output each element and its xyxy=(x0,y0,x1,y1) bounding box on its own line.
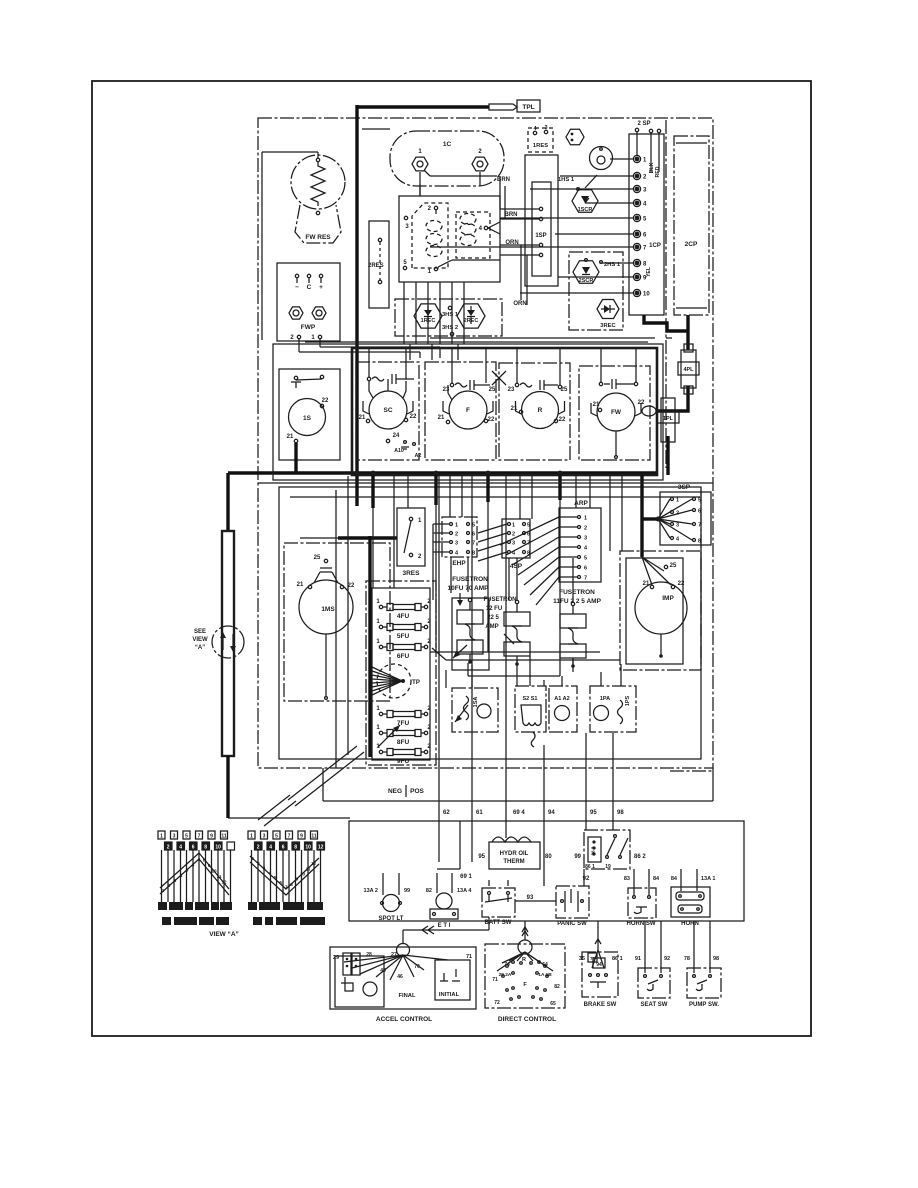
svg-text:SEE: SEE xyxy=(194,629,206,635)
svg-text:6: 6 xyxy=(282,845,285,851)
svg-text:11: 11 xyxy=(306,866,311,871)
svg-text:23: 23 xyxy=(443,387,450,393)
svg-text:8: 8 xyxy=(294,845,297,851)
svg-text:5: 5 xyxy=(584,556,587,562)
svg-text:10: 10 xyxy=(215,845,221,851)
svg-text:FUSETRON: FUSETRON xyxy=(452,576,488,583)
svg-text:12 FU: 12 FU xyxy=(486,606,502,612)
svg-text:7: 7 xyxy=(198,858,201,863)
svg-text:1SA: 1SA xyxy=(473,697,479,708)
svg-text:ORN: ORN xyxy=(513,301,526,307)
svg-text:2CP: 2CP xyxy=(685,241,698,248)
svg-text:EHP: EHP xyxy=(452,560,466,567)
svg-text:10: 10 xyxy=(300,872,306,877)
svg-text:99: 99 xyxy=(574,854,581,860)
svg-text:3: 3 xyxy=(263,866,266,871)
svg-text:95: 95 xyxy=(590,810,597,816)
svg-text:1SP: 1SP xyxy=(535,233,546,239)
svg-text:6: 6 xyxy=(192,845,195,851)
svg-text:2: 2 xyxy=(167,845,170,851)
svg-text:HORN: HORN xyxy=(681,921,699,927)
svg-text:1PL: 1PL xyxy=(663,416,674,422)
svg-text:RED: RED xyxy=(655,166,661,177)
svg-text:24: 24 xyxy=(393,433,400,439)
svg-text:29 2A: 29 2A xyxy=(499,972,512,978)
svg-text:NEG: NEG xyxy=(388,788,402,795)
svg-text:71: 71 xyxy=(492,977,498,983)
svg-text:2 SP: 2 SP xyxy=(637,121,650,127)
svg-text:45: 45 xyxy=(380,968,386,974)
svg-text:27: 27 xyxy=(391,952,397,958)
svg-text:62: 62 xyxy=(443,810,450,816)
svg-text:2: 2 xyxy=(455,532,458,538)
svg-text:2REC: 2REC xyxy=(464,318,479,324)
svg-text:11: 11 xyxy=(311,834,317,840)
svg-text:5: 5 xyxy=(185,834,188,840)
svg-text:IMP: IMP xyxy=(662,595,674,602)
svg-text:86 3: 86 3 xyxy=(591,846,596,855)
svg-text:65: 65 xyxy=(550,1001,556,1007)
svg-text:5: 5 xyxy=(274,875,277,880)
svg-text:INITIAL: INITIAL xyxy=(439,992,460,998)
svg-text:6: 6 xyxy=(192,863,195,868)
svg-text:4: 4 xyxy=(268,870,271,875)
svg-text:F: F xyxy=(466,407,470,414)
svg-text:SPOT LT: SPOT LT xyxy=(379,916,404,922)
svg-text:5: 5 xyxy=(275,834,278,840)
svg-text:5: 5 xyxy=(186,868,189,873)
svg-text:22 5: 22 5 xyxy=(487,615,499,621)
svg-text:61: 61 xyxy=(476,810,483,816)
svg-text:HORN SW: HORN SW xyxy=(627,921,656,927)
svg-text:5FU: 5FU xyxy=(397,633,410,640)
svg-text:3: 3 xyxy=(455,541,458,547)
svg-text:82: 82 xyxy=(426,888,432,894)
svg-text:12: 12 xyxy=(311,861,317,866)
svg-text:21: 21 xyxy=(359,415,366,421)
svg-text:“A”: “A” xyxy=(195,645,205,651)
svg-text:A10: A10 xyxy=(394,448,404,454)
svg-text:21: 21 xyxy=(643,581,650,587)
svg-text:98: 98 xyxy=(617,810,624,816)
svg-text:1HS 1: 1HS 1 xyxy=(558,177,575,183)
svg-text:9: 9 xyxy=(300,834,303,840)
svg-text:HYDR OIL: HYDR OIL xyxy=(500,851,529,857)
svg-text:28: 28 xyxy=(366,952,372,958)
svg-text:2RES: 2RES xyxy=(368,263,384,269)
svg-text:8FU: 8FU xyxy=(397,739,410,746)
svg-text:3HS 2: 3HS 2 xyxy=(442,325,458,331)
svg-text:FINAL: FINAL xyxy=(398,993,416,999)
svg-text:21: 21 xyxy=(511,406,518,412)
svg-text:3: 3 xyxy=(173,834,176,840)
svg-text:78: 78 xyxy=(684,956,690,962)
svg-text:6FU: 6FU xyxy=(397,653,410,660)
svg-text:FWP: FWP xyxy=(301,324,316,331)
svg-text:22: 22 xyxy=(678,581,685,587)
svg-text:99: 99 xyxy=(404,888,410,894)
svg-text:3RES: 3RES xyxy=(403,570,421,577)
svg-text:S2 S1: S2 S1 xyxy=(523,696,538,702)
svg-text:95: 95 xyxy=(478,854,485,860)
svg-text:86 1: 86 1 xyxy=(585,864,595,870)
svg-text:PUMP SW.: PUMP SW. xyxy=(689,1002,719,1008)
svg-text:1MS: 1MS xyxy=(321,606,335,613)
svg-text:1: 1 xyxy=(455,523,458,529)
svg-text:10: 10 xyxy=(305,845,311,851)
svg-text:2: 2 xyxy=(257,845,260,851)
svg-text:3: 3 xyxy=(174,878,177,883)
svg-text:2SCR: 2SCR xyxy=(579,278,594,284)
svg-text:70: 70 xyxy=(414,964,420,970)
svg-text:1PS: 1PS xyxy=(625,695,631,706)
svg-text:1PA: 1PA xyxy=(600,696,610,702)
svg-text:22: 22 xyxy=(348,583,355,589)
svg-text:86 1: 86 1 xyxy=(612,956,623,962)
svg-text:46: 46 xyxy=(397,974,403,980)
svg-text:9: 9 xyxy=(296,877,299,882)
svg-text:22: 22 xyxy=(488,417,495,423)
svg-text:7: 7 xyxy=(584,576,587,582)
svg-text:1: 1 xyxy=(252,856,255,861)
svg-text:FW: FW xyxy=(611,409,622,416)
svg-text:DIRECT CONTROL: DIRECT CONTROL xyxy=(498,1016,556,1023)
svg-text:21: 21 xyxy=(297,582,304,588)
svg-text:92: 92 xyxy=(664,956,670,962)
svg-text:E T I: E T I xyxy=(438,923,451,929)
svg-text:71: 71 xyxy=(466,954,472,960)
svg-text:FUSETRON: FUSETRON xyxy=(559,589,595,596)
svg-text:10: 10 xyxy=(211,869,217,874)
svg-text:12: 12 xyxy=(221,880,227,885)
svg-text:21: 21 xyxy=(593,402,600,408)
svg-text:72: 72 xyxy=(494,1000,500,1006)
svg-text:VIEW: VIEW xyxy=(192,637,208,643)
svg-text:FW RES: FW RES xyxy=(305,234,331,241)
svg-text:3REC: 3REC xyxy=(600,323,616,329)
svg-text:11FU 2 2 5 AMP: 11FU 2 2 5 AMP xyxy=(553,598,601,605)
svg-text:84: 84 xyxy=(671,876,678,882)
svg-text:3: 3 xyxy=(584,536,587,542)
svg-text:92: 92 xyxy=(583,876,590,882)
svg-text:6: 6 xyxy=(584,566,587,572)
svg-text:7: 7 xyxy=(198,834,201,840)
svg-text:83: 83 xyxy=(624,876,630,882)
svg-text:1S: 1S xyxy=(303,415,312,422)
svg-text:94: 94 xyxy=(596,962,602,968)
svg-text:THERM: THERM xyxy=(503,859,524,865)
svg-text:PANIC SW: PANIC SW xyxy=(557,921,587,927)
svg-text:3: 3 xyxy=(544,125,547,131)
svg-text:8: 8 xyxy=(203,858,206,863)
svg-text:3HS 1: 3HS 1 xyxy=(442,312,459,318)
svg-text:3SP: 3SP xyxy=(678,484,691,491)
svg-text:POS: POS xyxy=(410,788,424,795)
svg-text:69 4: 69 4 xyxy=(513,810,525,816)
svg-text:4FU: 4FU xyxy=(397,613,410,620)
svg-text:13A 1: 13A 1 xyxy=(701,876,715,882)
svg-text:82: 82 xyxy=(554,984,560,990)
svg-text:10: 10 xyxy=(643,292,650,298)
svg-text:9: 9 xyxy=(210,834,213,840)
svg-text:86 2: 86 2 xyxy=(634,854,646,860)
svg-text:1: 1 xyxy=(160,834,163,840)
svg-text:+: + xyxy=(319,284,323,291)
svg-text:93: 93 xyxy=(527,895,534,901)
svg-text:TP: TP xyxy=(412,680,420,686)
svg-text:3: 3 xyxy=(512,541,515,547)
svg-text:12: 12 xyxy=(318,845,324,851)
svg-text:2: 2 xyxy=(512,532,515,538)
svg-text:3: 3 xyxy=(676,523,679,529)
svg-text:1: 1 xyxy=(162,888,165,893)
svg-text:1A 1B: 1A 1B xyxy=(538,972,552,978)
svg-text:4: 4 xyxy=(180,873,183,878)
svg-text:4: 4 xyxy=(269,845,272,851)
svg-text:25: 25 xyxy=(670,563,677,569)
svg-text:1RES: 1RES xyxy=(533,143,548,149)
svg-text:98: 98 xyxy=(713,956,719,962)
svg-text:7: 7 xyxy=(288,834,291,840)
svg-text:YEL: YEL xyxy=(646,266,652,277)
svg-text:VIEW “A”: VIEW “A” xyxy=(209,931,239,938)
svg-text:BRN: BRN xyxy=(505,212,518,218)
svg-text:ACCEL CONTROL: ACCEL CONTROL xyxy=(376,1016,432,1023)
svg-text:1: 1 xyxy=(512,523,515,529)
svg-text:22: 22 xyxy=(638,400,645,406)
svg-text:69 1: 69 1 xyxy=(460,874,472,880)
svg-text:25: 25 xyxy=(314,555,321,561)
svg-text:4SP: 4SP xyxy=(510,563,523,570)
svg-text:13A 4: 13A 4 xyxy=(457,888,472,894)
svg-text:2: 2 xyxy=(584,526,587,532)
svg-text:25: 25 xyxy=(489,387,496,393)
svg-text:−: − xyxy=(295,284,299,291)
svg-text:BRN: BRN xyxy=(497,177,510,183)
svg-text:SC: SC xyxy=(383,407,392,414)
svg-text:1SCR: 1SCR xyxy=(578,207,593,213)
svg-text:AMP: AMP xyxy=(485,624,498,630)
svg-text:1: 1 xyxy=(676,498,679,504)
svg-text:19: 19 xyxy=(605,864,611,870)
svg-text:A2: A2 xyxy=(415,453,422,459)
svg-text:21: 21 xyxy=(438,415,445,421)
svg-text:R: R xyxy=(538,407,543,414)
svg-text:22: 22 xyxy=(410,414,417,420)
svg-text:4: 4 xyxy=(179,845,182,851)
svg-text:4PL: 4PL xyxy=(683,367,694,373)
svg-text:6: 6 xyxy=(279,880,282,885)
svg-text:3: 3 xyxy=(263,834,266,840)
svg-text:8: 8 xyxy=(204,845,207,851)
svg-text:94: 94 xyxy=(548,810,555,816)
svg-text:TPL: TPL xyxy=(522,104,534,111)
svg-text:SEAT SW: SEAT SW xyxy=(641,1002,668,1008)
svg-text:91: 91 xyxy=(635,956,641,962)
svg-text:23: 23 xyxy=(508,387,515,393)
svg-text:A1 A2: A1 A2 xyxy=(554,696,569,702)
svg-text:35: 35 xyxy=(579,956,585,962)
svg-text:9: 9 xyxy=(208,863,211,868)
svg-text:1CP: 1CP xyxy=(649,243,661,249)
svg-text:1C: 1C xyxy=(443,141,452,148)
svg-text:5: 5 xyxy=(527,523,530,529)
svg-text:9FU: 9FU xyxy=(397,758,410,765)
svg-text:22: 22 xyxy=(559,417,566,423)
svg-text:8: 8 xyxy=(290,882,293,887)
svg-text:11: 11 xyxy=(221,834,227,840)
svg-text:11: 11 xyxy=(217,874,222,879)
svg-text:1: 1 xyxy=(250,834,253,840)
svg-text:7: 7 xyxy=(285,885,288,890)
svg-text:13A 2: 13A 2 xyxy=(364,888,378,894)
svg-text:2: 2 xyxy=(257,861,260,866)
svg-text:BRAKE SW: BRAKE SW xyxy=(584,1002,617,1008)
svg-text:1: 1 xyxy=(584,516,587,522)
svg-text:C: C xyxy=(307,284,312,291)
svg-text:FUSETRON: FUSETRON xyxy=(484,597,517,603)
svg-text:84: 84 xyxy=(653,876,660,882)
svg-text:80: 80 xyxy=(545,854,552,860)
svg-text:22: 22 xyxy=(322,398,329,404)
svg-text:21: 21 xyxy=(287,434,294,440)
svg-text:2: 2 xyxy=(168,883,171,888)
